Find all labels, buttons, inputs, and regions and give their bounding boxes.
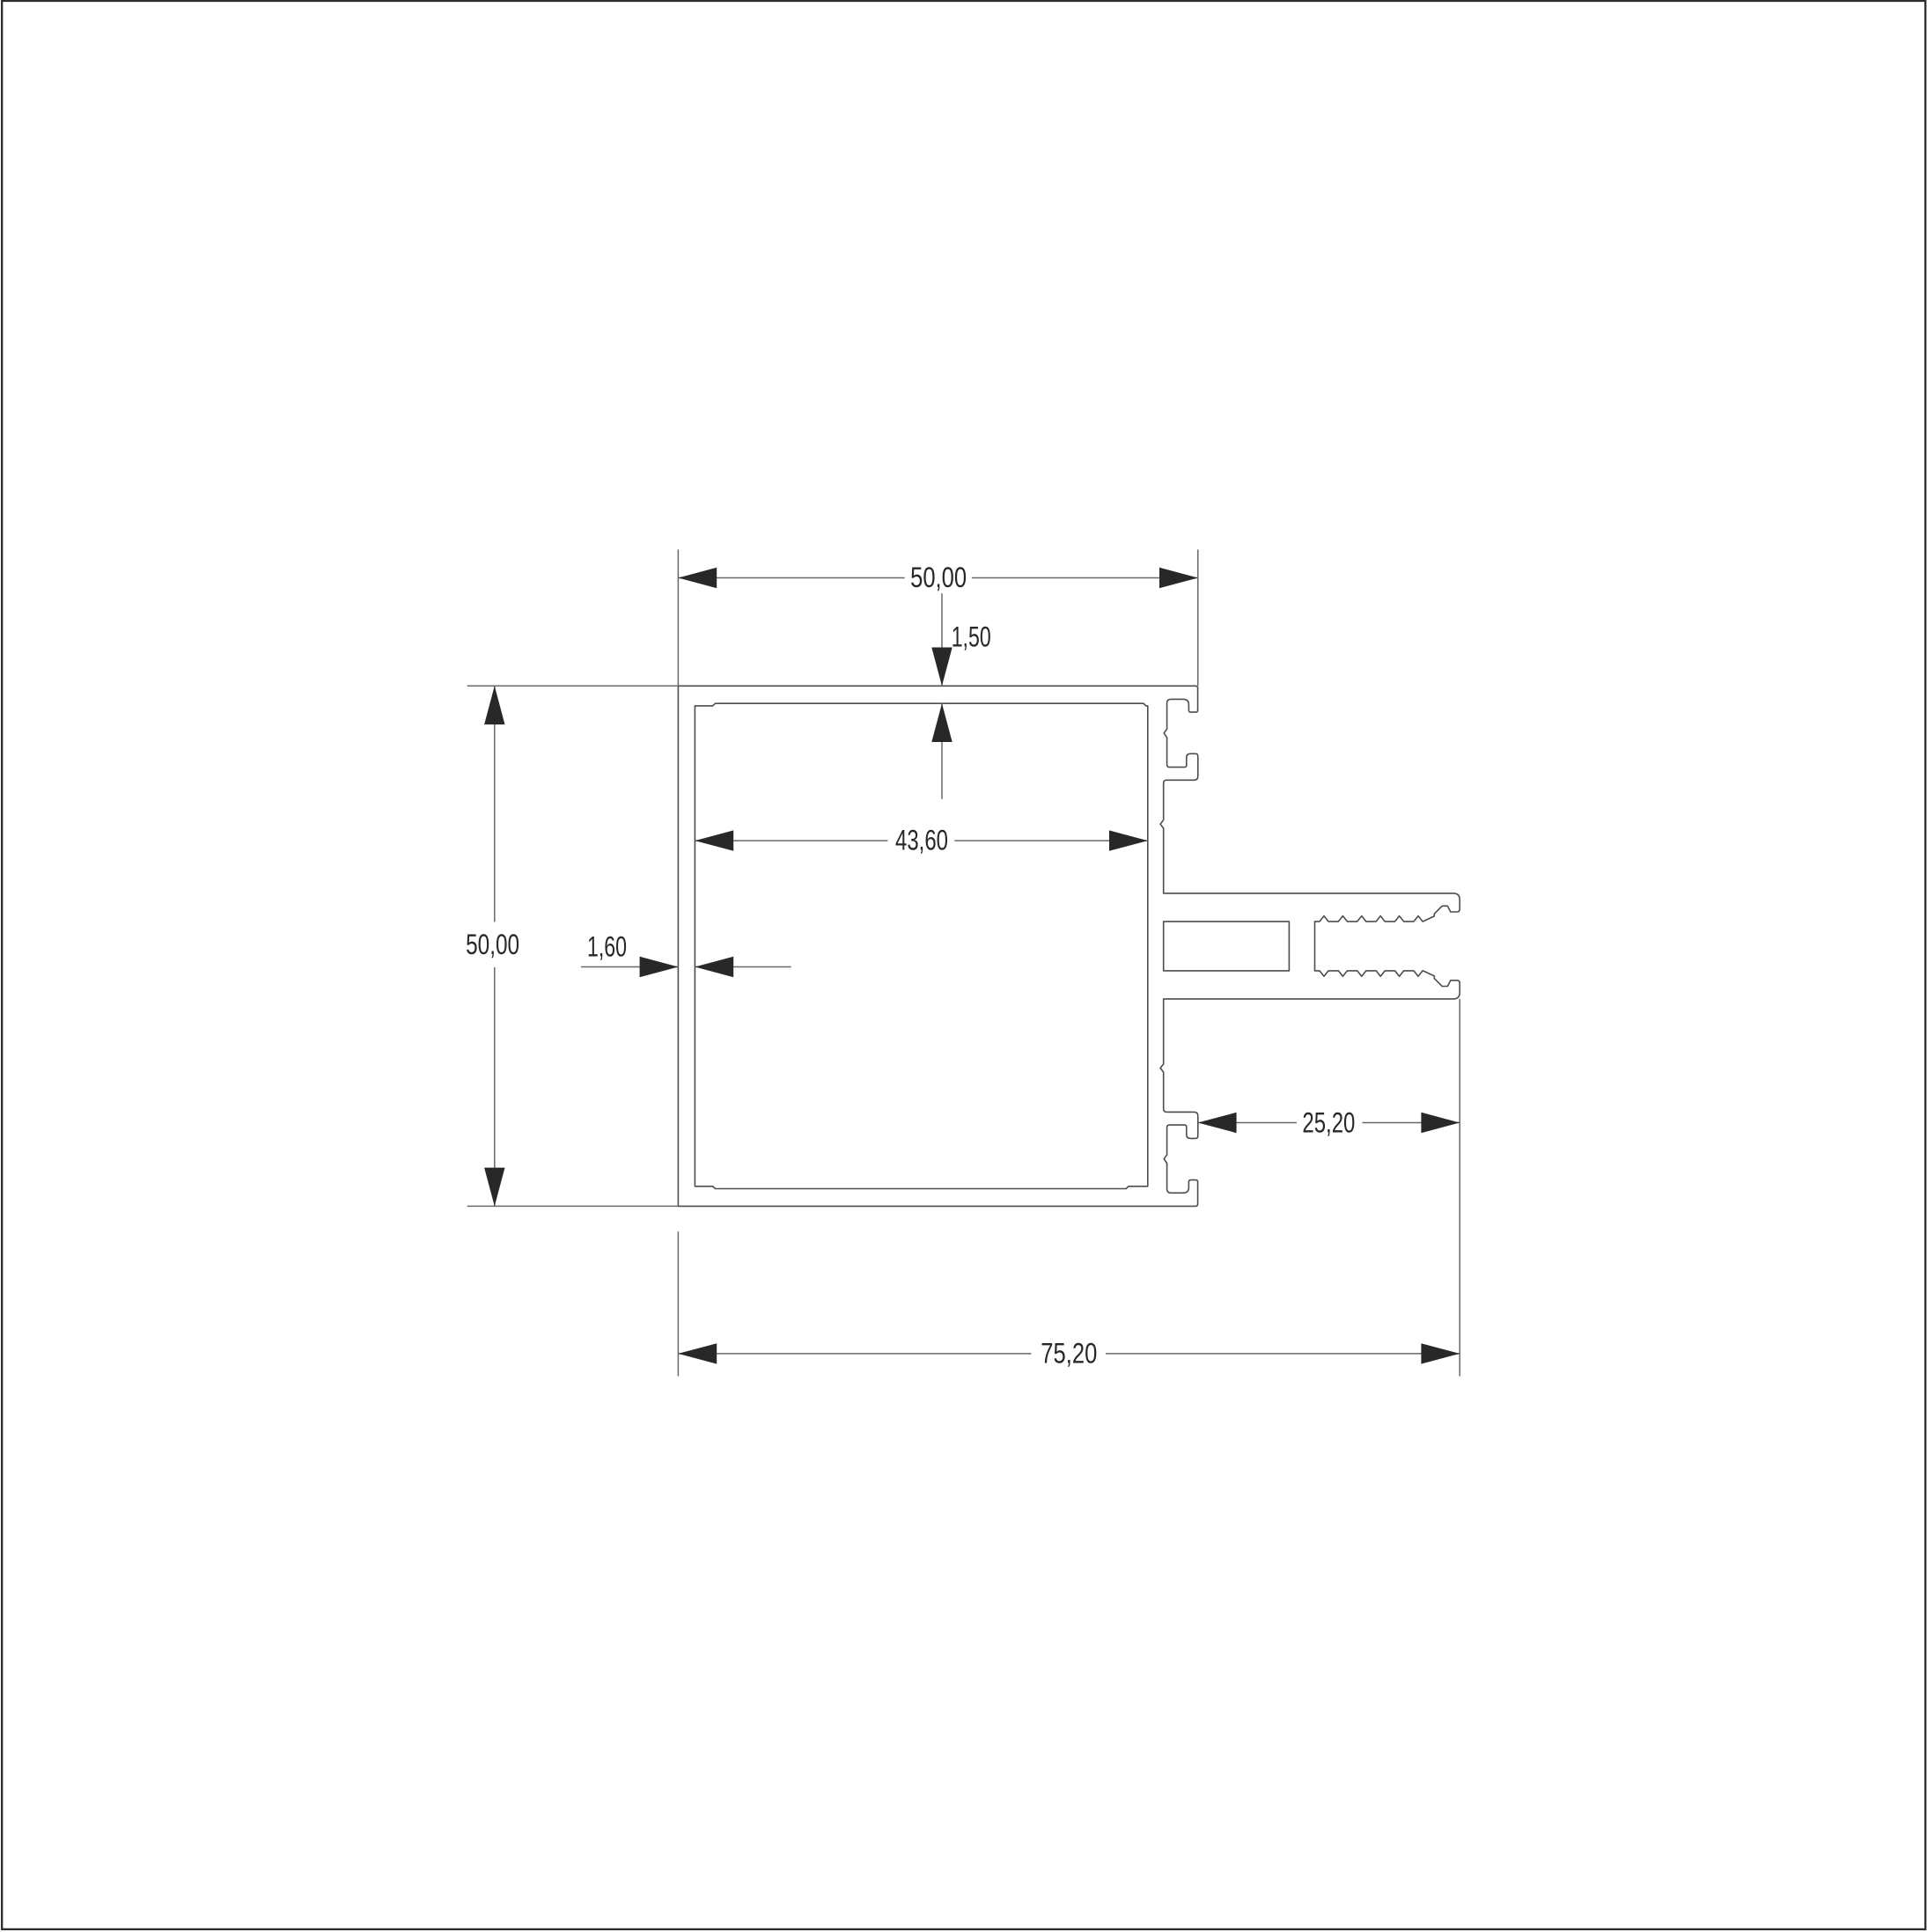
svg-text:1,60: 1,60 bbox=[587, 931, 627, 963]
svg-text:25,20: 25,20 bbox=[1302, 1106, 1355, 1138]
svg-text:43,60: 43,60 bbox=[895, 825, 948, 856]
svg-text:75,20: 75,20 bbox=[1041, 1337, 1097, 1369]
svg-text:50,00: 50,00 bbox=[910, 562, 967, 593]
svg-text:50,00: 50,00 bbox=[466, 929, 519, 960]
svg-text:1,50: 1,50 bbox=[952, 621, 991, 652]
